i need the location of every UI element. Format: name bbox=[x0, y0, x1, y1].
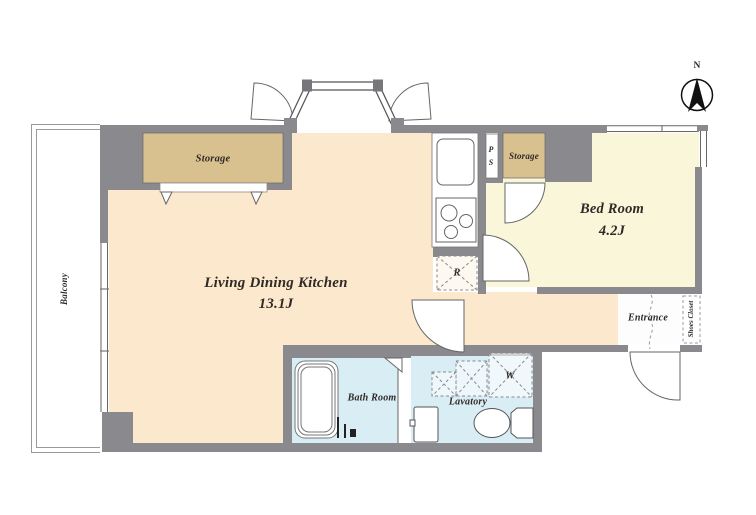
burner bbox=[445, 226, 458, 239]
window-left bbox=[100, 243, 109, 412]
casement-left bbox=[251, 83, 293, 121]
room-label-bedroom: Bed Room 4.2J bbox=[580, 198, 644, 242]
room-label-bathroom: Bath Room bbox=[348, 393, 397, 404]
kitchen-sink bbox=[437, 139, 474, 185]
bay-mullion-cap bbox=[373, 80, 383, 92]
room-label-pipe-space: P S bbox=[489, 143, 494, 169]
toilet bbox=[474, 408, 533, 438]
room-label-balcony: Balcony bbox=[59, 273, 69, 305]
entrance-door bbox=[630, 352, 680, 400]
label-washer-space: W bbox=[505, 371, 515, 382]
burner bbox=[460, 215, 473, 228]
ldk-size: 13.1J bbox=[204, 294, 347, 315]
room-label-storage-right: Storage bbox=[509, 151, 539, 161]
bay-mullion-cap bbox=[302, 80, 312, 92]
compass bbox=[682, 78, 713, 112]
window-bedroom-right bbox=[699, 131, 708, 167]
compass-north-label: N bbox=[693, 61, 700, 71]
room-label-ldk: Living Dining Kitchen 13.1J bbox=[204, 273, 347, 315]
label-refrigerator-space: R bbox=[454, 268, 461, 279]
bathtub bbox=[295, 361, 338, 438]
bedroom-size: 4.2J bbox=[580, 220, 644, 242]
lavatory-door bbox=[410, 407, 438, 442]
room-label-entrance: Entrance bbox=[628, 313, 668, 324]
floor-plan: Living Dining Kitchen 13.1J Bed Room 4.2… bbox=[0, 0, 756, 515]
room-label-lavatory: Lavatory bbox=[449, 397, 487, 408]
ldk-name: Living Dining Kitchen bbox=[204, 273, 347, 294]
bedroom-name: Bed Room bbox=[580, 198, 644, 220]
room-label-shoes-closet: Shoes Closet bbox=[687, 301, 695, 338]
window-bedroom-top bbox=[607, 125, 697, 133]
kitchen-counter bbox=[432, 133, 478, 247]
floor-plan-drawing bbox=[0, 0, 756, 515]
room-label-storage-left: Storage bbox=[196, 154, 231, 165]
casement-right bbox=[389, 83, 431, 121]
burner bbox=[441, 205, 457, 221]
